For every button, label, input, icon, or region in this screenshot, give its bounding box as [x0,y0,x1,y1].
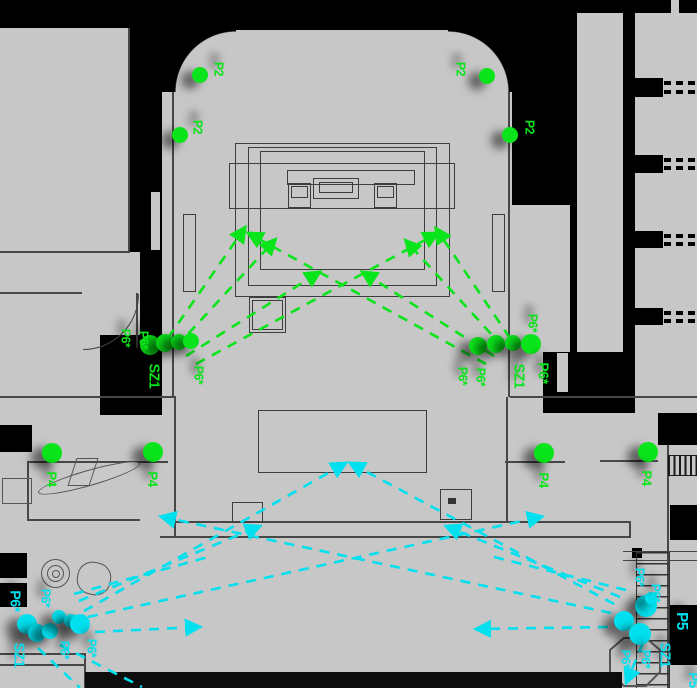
device-label: P6* [640,650,653,668]
device-label: P6* [536,362,551,384]
device-label: P6* [86,639,99,657]
device-label: P6* [457,367,470,385]
device-dot-green [172,127,188,143]
device-label: P6* [59,641,72,659]
device-dot-green [534,443,554,463]
device-label: P4 [45,471,59,486]
device-dot-green [487,335,505,353]
device-label: P2 [213,62,226,76]
device-label: P6* [120,329,133,347]
device-label: SZ1 [147,364,162,389]
device-label: P4 [146,471,160,486]
device-label: P2 [524,120,537,134]
device-dot-green [183,333,199,349]
device-label: P4 [537,472,551,487]
device-label: P6* [475,368,488,386]
device-label: P6* [650,584,663,602]
device-label: P5 [687,672,697,687]
device-label: P6* [138,331,151,349]
device-dot-green [42,443,62,463]
device-label: P6* [40,589,53,607]
device-label: P5 [673,612,689,630]
device-annotations-layer: P2P2P2P2P6*P6*SZ1P6*P6*P6*P6*SZ1P6*P4P4P… [0,0,697,688]
device-label: P6* [8,590,23,612]
device-dot-cyan [70,614,90,634]
device-label: P2 [192,120,205,134]
device-label: P6* [193,366,206,384]
device-label: SZ1 [658,643,673,668]
floor-plan-canvas: P2P2P2P2P6*P6*SZ1P6*P6*P6*P6*SZ1P6*P4P4P… [0,0,697,688]
device-dot-green [143,442,163,462]
device-label: P6* [527,314,540,332]
device-dot-green [521,334,541,354]
device-dot-green [479,68,495,84]
device-label: SZ1 [512,364,527,389]
device-label: P6* [620,650,633,668]
device-label: P4 [640,470,654,485]
device-dot-cyan [629,623,651,645]
device-label: P6* [634,568,647,586]
device-dot-green [469,337,487,355]
device-label: P2 [455,62,468,76]
device-dot-green [502,127,518,143]
device-dot-cyan [42,623,58,639]
device-dot-green [638,442,658,462]
device-dot-green [192,67,208,83]
device-dot-green [505,335,521,351]
device-label: SZ1 [12,643,27,668]
